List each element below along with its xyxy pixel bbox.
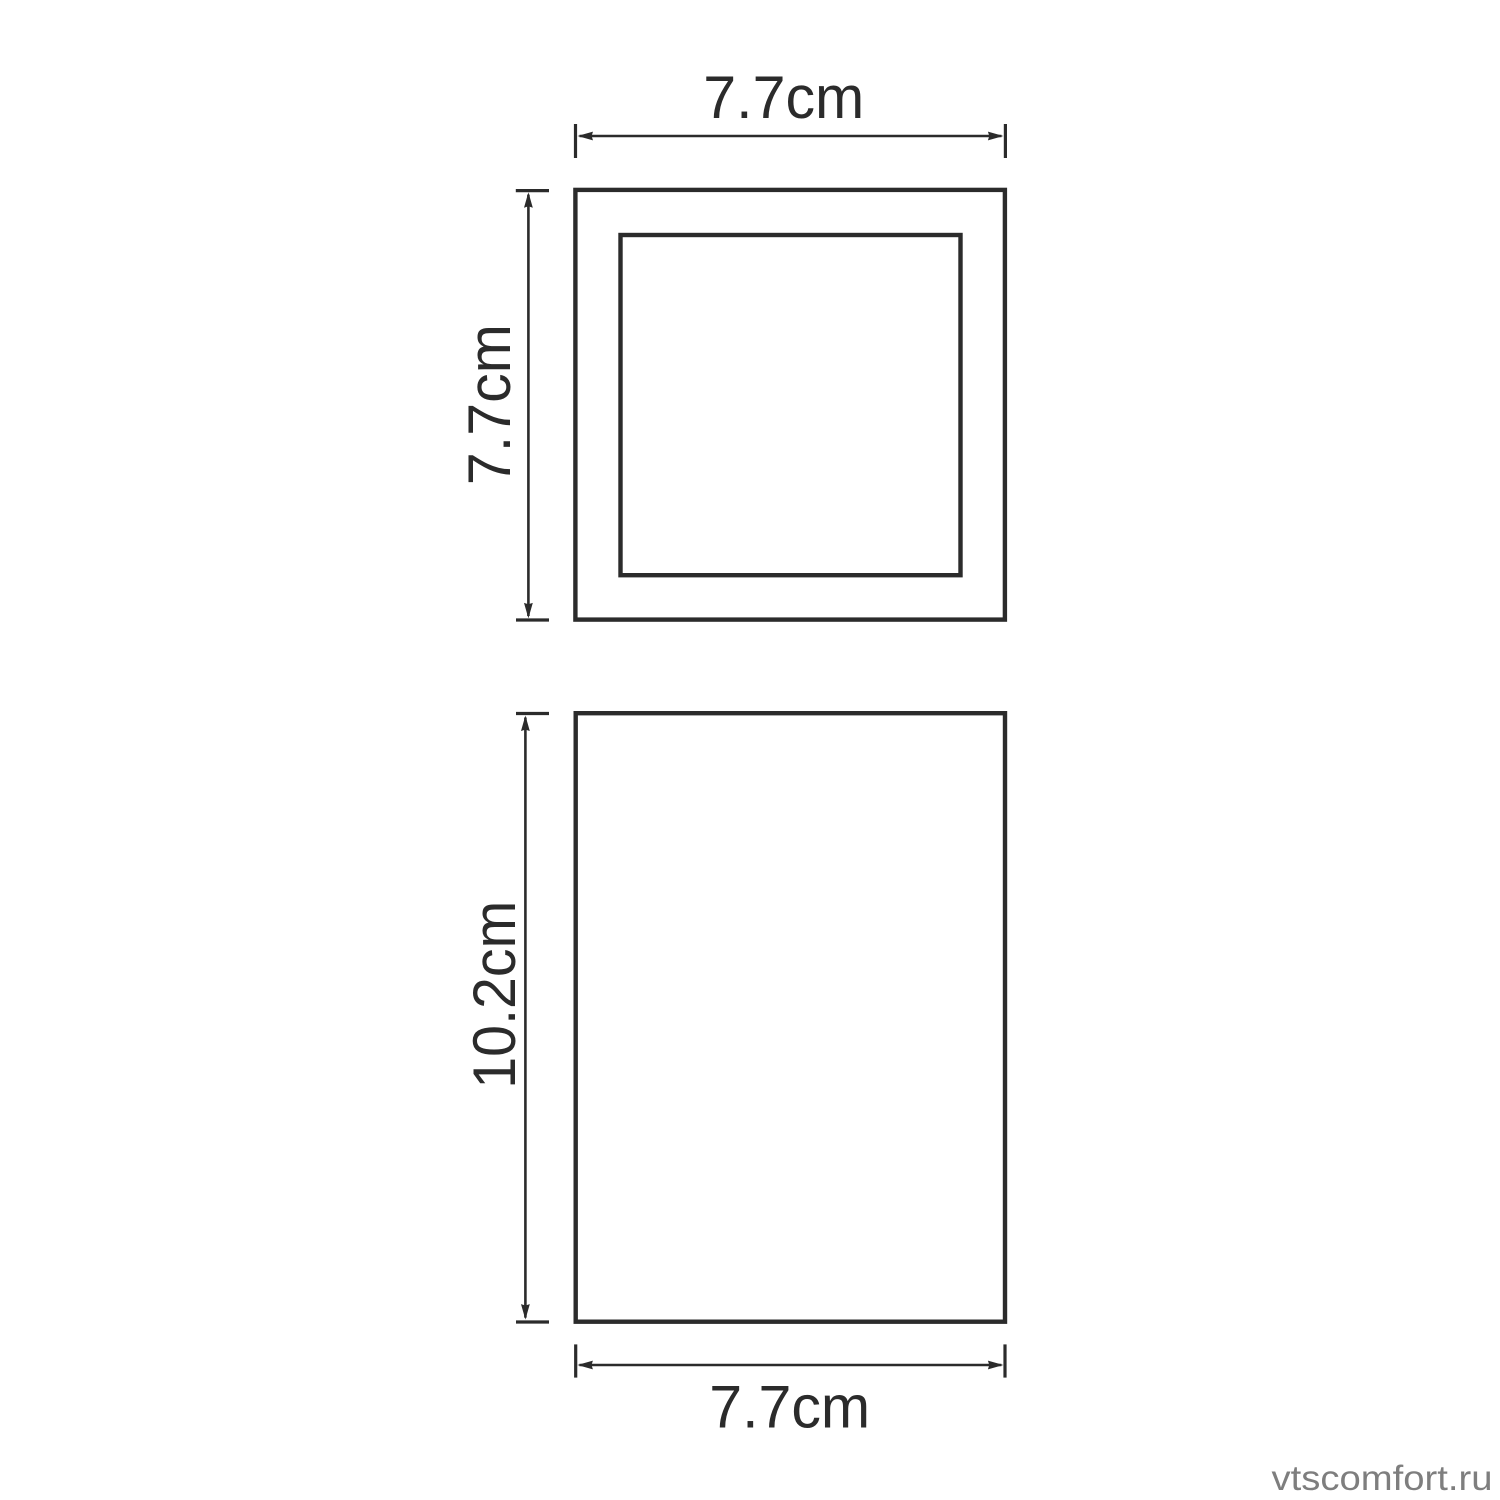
svg-text:7.7cm: 7.7cm <box>455 324 523 485</box>
svg-text:7.7cm: 7.7cm <box>703 63 864 131</box>
svg-text:vtscomfort.ru: vtscomfort.ru <box>1272 1459 1493 1498</box>
svg-text:10.2cm: 10.2cm <box>460 901 528 1089</box>
svg-text:7.7cm: 7.7cm <box>709 1373 870 1441</box>
